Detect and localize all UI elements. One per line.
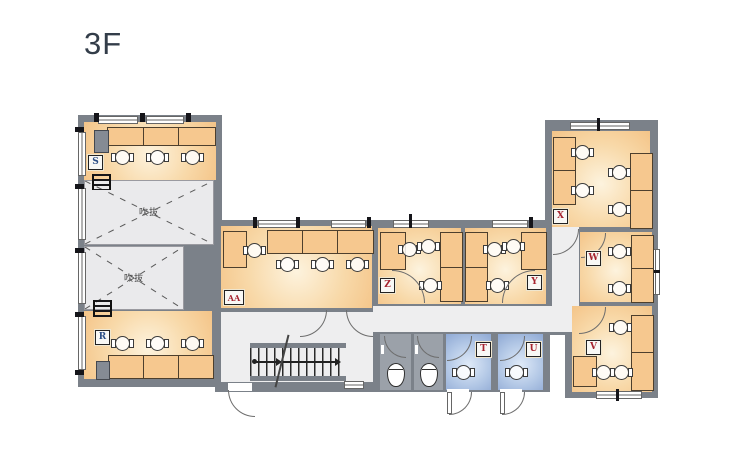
chair-icon: [490, 278, 505, 293]
chair-icon: [280, 257, 295, 272]
desk: [521, 232, 547, 270]
chair-icon: [115, 150, 130, 165]
door-arc: [228, 390, 255, 417]
window: [78, 188, 86, 240]
chair-icon: [150, 336, 165, 351]
room-y-badge: Y: [527, 275, 542, 290]
room-t-badge: T: [476, 342, 491, 357]
desk: [631, 268, 654, 303]
door-arc: [449, 392, 472, 415]
chair-icon: [596, 365, 611, 380]
stairs-arrow: [335, 358, 341, 366]
chair-icon: [150, 150, 165, 165]
cabinet: [96, 361, 110, 380]
chair-icon: [612, 165, 627, 180]
chair-icon: [506, 239, 521, 254]
chair-icon: [115, 336, 130, 351]
wall-tick: [409, 214, 412, 228]
ladder-icon: [93, 300, 112, 317]
window: [331, 220, 366, 228]
desk: [440, 267, 463, 302]
chair-icon: [612, 244, 627, 259]
desk: [143, 355, 180, 379]
window: [146, 116, 184, 124]
chair-icon: [509, 365, 524, 380]
ladder-icon: [92, 174, 111, 190]
desk: [337, 230, 374, 254]
void-label: 吹抜: [85, 271, 183, 284]
chair-icon: [315, 257, 330, 272]
wall-tick: [75, 370, 84, 375]
desk: [302, 230, 339, 254]
chair-icon: [575, 183, 590, 198]
chair-icon: [185, 150, 200, 165]
chair-icon: [612, 202, 627, 217]
desk: [107, 127, 145, 146]
desk: [630, 153, 653, 192]
desk: [178, 127, 216, 146]
void-label: 吹抜: [85, 205, 213, 218]
chair-icon: [614, 365, 629, 380]
room-v-badge: V: [586, 340, 601, 355]
desk: [631, 352, 654, 391]
wall-tick: [94, 113, 99, 122]
wall-tick: [75, 127, 84, 132]
chair-icon: [487, 242, 502, 257]
toilet-icon: [387, 363, 405, 387]
chair-icon: [612, 281, 627, 296]
cabinet: [94, 130, 109, 153]
desk: [631, 315, 654, 354]
chair-icon: [575, 145, 590, 160]
stall-fixture: [381, 345, 384, 354]
room-r-badge: R: [95, 330, 110, 345]
desk: [108, 355, 145, 379]
wall-tick: [597, 118, 600, 131]
room-z-badge: Z: [380, 278, 395, 293]
stairs-direction-line: [254, 361, 338, 363]
stall-fixture: [415, 345, 418, 354]
wall-tick: [529, 217, 533, 228]
chair-icon: [185, 336, 200, 351]
toilet-icon: [420, 363, 438, 387]
window: [78, 316, 86, 370]
chair-icon: [423, 278, 438, 293]
window: [98, 116, 138, 124]
wall-tick: [296, 217, 300, 228]
chair-icon: [247, 243, 262, 258]
desk: [440, 232, 463, 269]
desk: [267, 230, 304, 254]
wall-tick: [253, 217, 257, 228]
wall-tick: [140, 113, 145, 122]
door-arc: [502, 392, 525, 415]
window: [570, 122, 630, 130]
desk: [631, 235, 654, 270]
chair-icon: [456, 365, 471, 380]
room-aa-badge: AA: [224, 290, 244, 305]
window: [78, 252, 86, 304]
chair-icon: [421, 239, 436, 254]
room-u-badge: U: [526, 342, 541, 357]
room-w-badge: W: [586, 251, 601, 266]
wall-tick: [75, 312, 84, 317]
window: [344, 381, 364, 389]
desk: [143, 127, 180, 146]
floor-plan: 3F 吹抜 吹抜: [0, 0, 744, 459]
desk: [178, 355, 214, 379]
window: [78, 132, 86, 176]
window: [596, 391, 642, 399]
wall-tick: [616, 389, 619, 401]
room-s-badge: S: [88, 155, 103, 170]
chair-icon: [402, 242, 417, 257]
window: [492, 220, 528, 228]
wall-tick: [75, 248, 84, 253]
wall-tick: [75, 184, 84, 189]
chair-icon: [350, 257, 365, 272]
desk: [465, 267, 488, 302]
room-x-badge: X: [553, 209, 568, 224]
desk: [630, 190, 653, 229]
chair-icon: [613, 320, 628, 335]
window: [258, 220, 298, 228]
wall-tick: [186, 113, 191, 122]
floor-title: 3F: [84, 26, 122, 62]
wall-tick: [367, 217, 371, 228]
corridor-center: [373, 306, 579, 332]
